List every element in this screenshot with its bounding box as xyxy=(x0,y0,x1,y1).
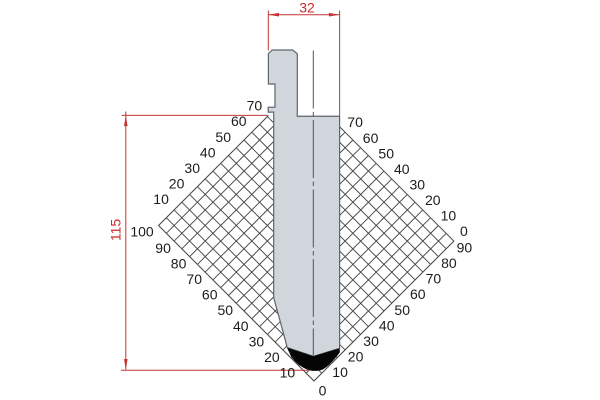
svg-text:80: 80 xyxy=(171,256,187,272)
svg-text:70: 70 xyxy=(426,271,442,287)
svg-text:0: 0 xyxy=(319,383,327,399)
svg-text:40: 40 xyxy=(200,144,216,160)
svg-text:40: 40 xyxy=(379,317,395,333)
svg-text:32: 32 xyxy=(299,0,315,15)
svg-text:20: 20 xyxy=(348,348,364,364)
svg-text:50: 50 xyxy=(378,145,394,161)
svg-text:10: 10 xyxy=(153,191,169,207)
svg-text:40: 40 xyxy=(233,318,249,334)
svg-text:100: 100 xyxy=(130,224,154,240)
svg-text:60: 60 xyxy=(410,286,426,302)
svg-text:90: 90 xyxy=(155,240,171,256)
svg-text:50: 50 xyxy=(394,302,410,318)
svg-text:60: 60 xyxy=(363,130,379,146)
svg-text:115: 115 xyxy=(108,219,124,242)
svg-text:10: 10 xyxy=(280,364,296,380)
svg-text:10: 10 xyxy=(441,208,457,224)
svg-text:70: 70 xyxy=(186,271,202,287)
svg-text:20: 20 xyxy=(425,192,441,208)
svg-text:30: 30 xyxy=(410,176,426,192)
svg-text:0: 0 xyxy=(460,223,468,239)
svg-text:70: 70 xyxy=(347,114,363,130)
svg-text:30: 30 xyxy=(363,333,379,349)
svg-text:40: 40 xyxy=(394,161,410,177)
svg-text:70: 70 xyxy=(247,98,263,114)
svg-text:10: 10 xyxy=(332,364,348,380)
svg-text:60: 60 xyxy=(231,113,247,129)
svg-text:60: 60 xyxy=(202,287,218,303)
svg-text:20: 20 xyxy=(264,349,280,365)
svg-text:20: 20 xyxy=(169,175,185,191)
svg-text:50: 50 xyxy=(218,302,234,318)
svg-text:90: 90 xyxy=(457,240,473,256)
svg-text:80: 80 xyxy=(441,255,457,271)
svg-text:30: 30 xyxy=(184,160,200,176)
svg-text:50: 50 xyxy=(215,129,231,145)
svg-text:30: 30 xyxy=(249,333,265,349)
